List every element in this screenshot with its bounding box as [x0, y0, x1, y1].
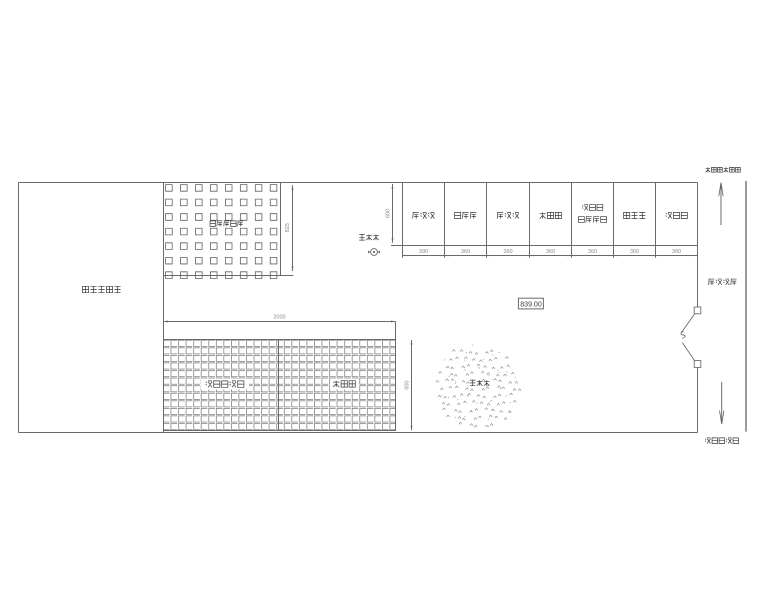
svg-text:825: 825 [285, 223, 291, 232]
svg-text:360: 360 [503, 249, 512, 255]
svg-text:360: 360 [630, 249, 639, 255]
svg-text:600: 600 [386, 209, 392, 218]
svg-text:360: 360 [546, 249, 555, 255]
svg-text:839.00: 839.00 [520, 299, 542, 308]
svg-text:390: 390 [419, 249, 428, 255]
svg-text:360: 360 [588, 249, 597, 255]
svg-text:360: 360 [461, 249, 470, 255]
svg-text:360: 360 [672, 249, 681, 255]
svg-text:800: 800 [404, 381, 410, 390]
svg-text:2000: 2000 [273, 315, 285, 321]
